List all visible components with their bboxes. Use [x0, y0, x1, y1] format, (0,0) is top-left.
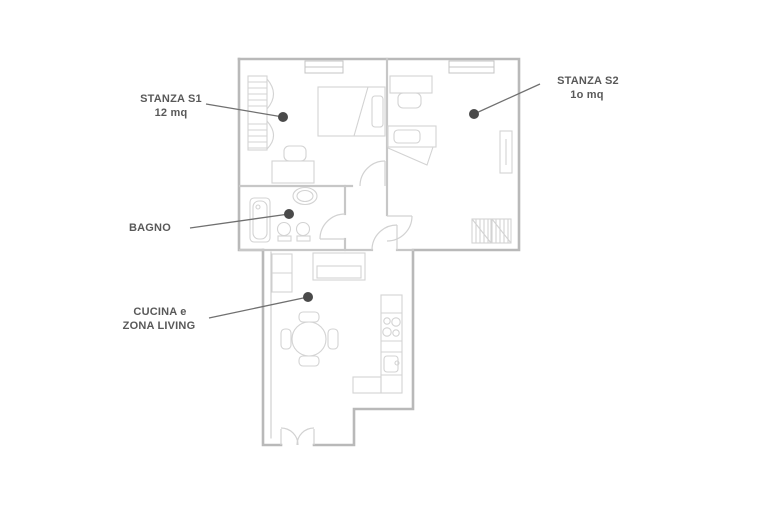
room-area: ZONA LIVING — [123, 320, 196, 332]
interior-walls — [240, 59, 413, 438]
counter-extension — [353, 377, 381, 393]
furniture-stanza-s2 — [388, 76, 512, 243]
room-name: STANZA S1 — [140, 93, 202, 105]
floor-plan-page: STANZA S1 12 mq STANZA S2 1o mq BAGNO CU… — [0, 0, 760, 507]
door-kitchen-passage — [372, 225, 397, 250]
leader-line — [209, 297, 308, 318]
room-labels: STANZA S1 12 mq STANZA S2 1o mq BAGNO CU… — [123, 75, 619, 332]
sideboard — [313, 253, 365, 280]
dining-table — [281, 312, 338, 366]
label-cucina-zona-living: CUCINA e ZONA LIVING — [123, 292, 313, 332]
label-bagno: BAGNO — [129, 209, 294, 234]
sink — [293, 188, 317, 205]
single-bed — [388, 126, 436, 165]
double-bed — [318, 87, 385, 136]
room-area: 12 mq — [155, 107, 188, 119]
bidet — [297, 223, 311, 242]
room-name: BAGNO — [129, 222, 171, 234]
floor-plan-canvas: STANZA S1 12 mq STANZA S2 1o mq BAGNO CU… — [0, 0, 760, 507]
room-area: 1o mq — [570, 89, 603, 101]
bathtub — [250, 198, 270, 242]
desk-s1 — [272, 146, 314, 183]
leader-line — [474, 84, 540, 114]
label-stanza-s2: STANZA S2 1o mq — [469, 75, 619, 119]
stove-burner — [393, 330, 399, 336]
furniture-stanza-s1 — [248, 76, 385, 183]
stove-burner — [384, 318, 390, 324]
entrance-double-door — [281, 428, 314, 445]
marker-dot — [278, 112, 288, 122]
furniture-cucina — [272, 253, 402, 393]
toilet — [278, 223, 292, 242]
wardrobe-s2 — [472, 219, 511, 243]
windows — [305, 61, 494, 73]
label-stanza-s1: STANZA S1 12 mq — [140, 93, 288, 122]
marker-dot — [284, 209, 294, 219]
door-stanza-s2 — [387, 216, 412, 241]
room-name: CUCINA e — [133, 306, 186, 318]
stove-burner — [383, 328, 391, 336]
marker-dot — [303, 292, 313, 302]
leader-line — [206, 104, 283, 117]
radiator-s2 — [500, 131, 512, 173]
door-bagno — [320, 214, 345, 239]
cabinet-left — [272, 254, 292, 292]
door-stanza-s1 — [360, 161, 385, 186]
marker-dot — [469, 109, 479, 119]
stove-burner — [392, 318, 400, 326]
room-name: STANZA S2 — [557, 75, 619, 87]
kitchen-counter — [353, 295, 402, 393]
desk-s2 — [390, 76, 432, 108]
